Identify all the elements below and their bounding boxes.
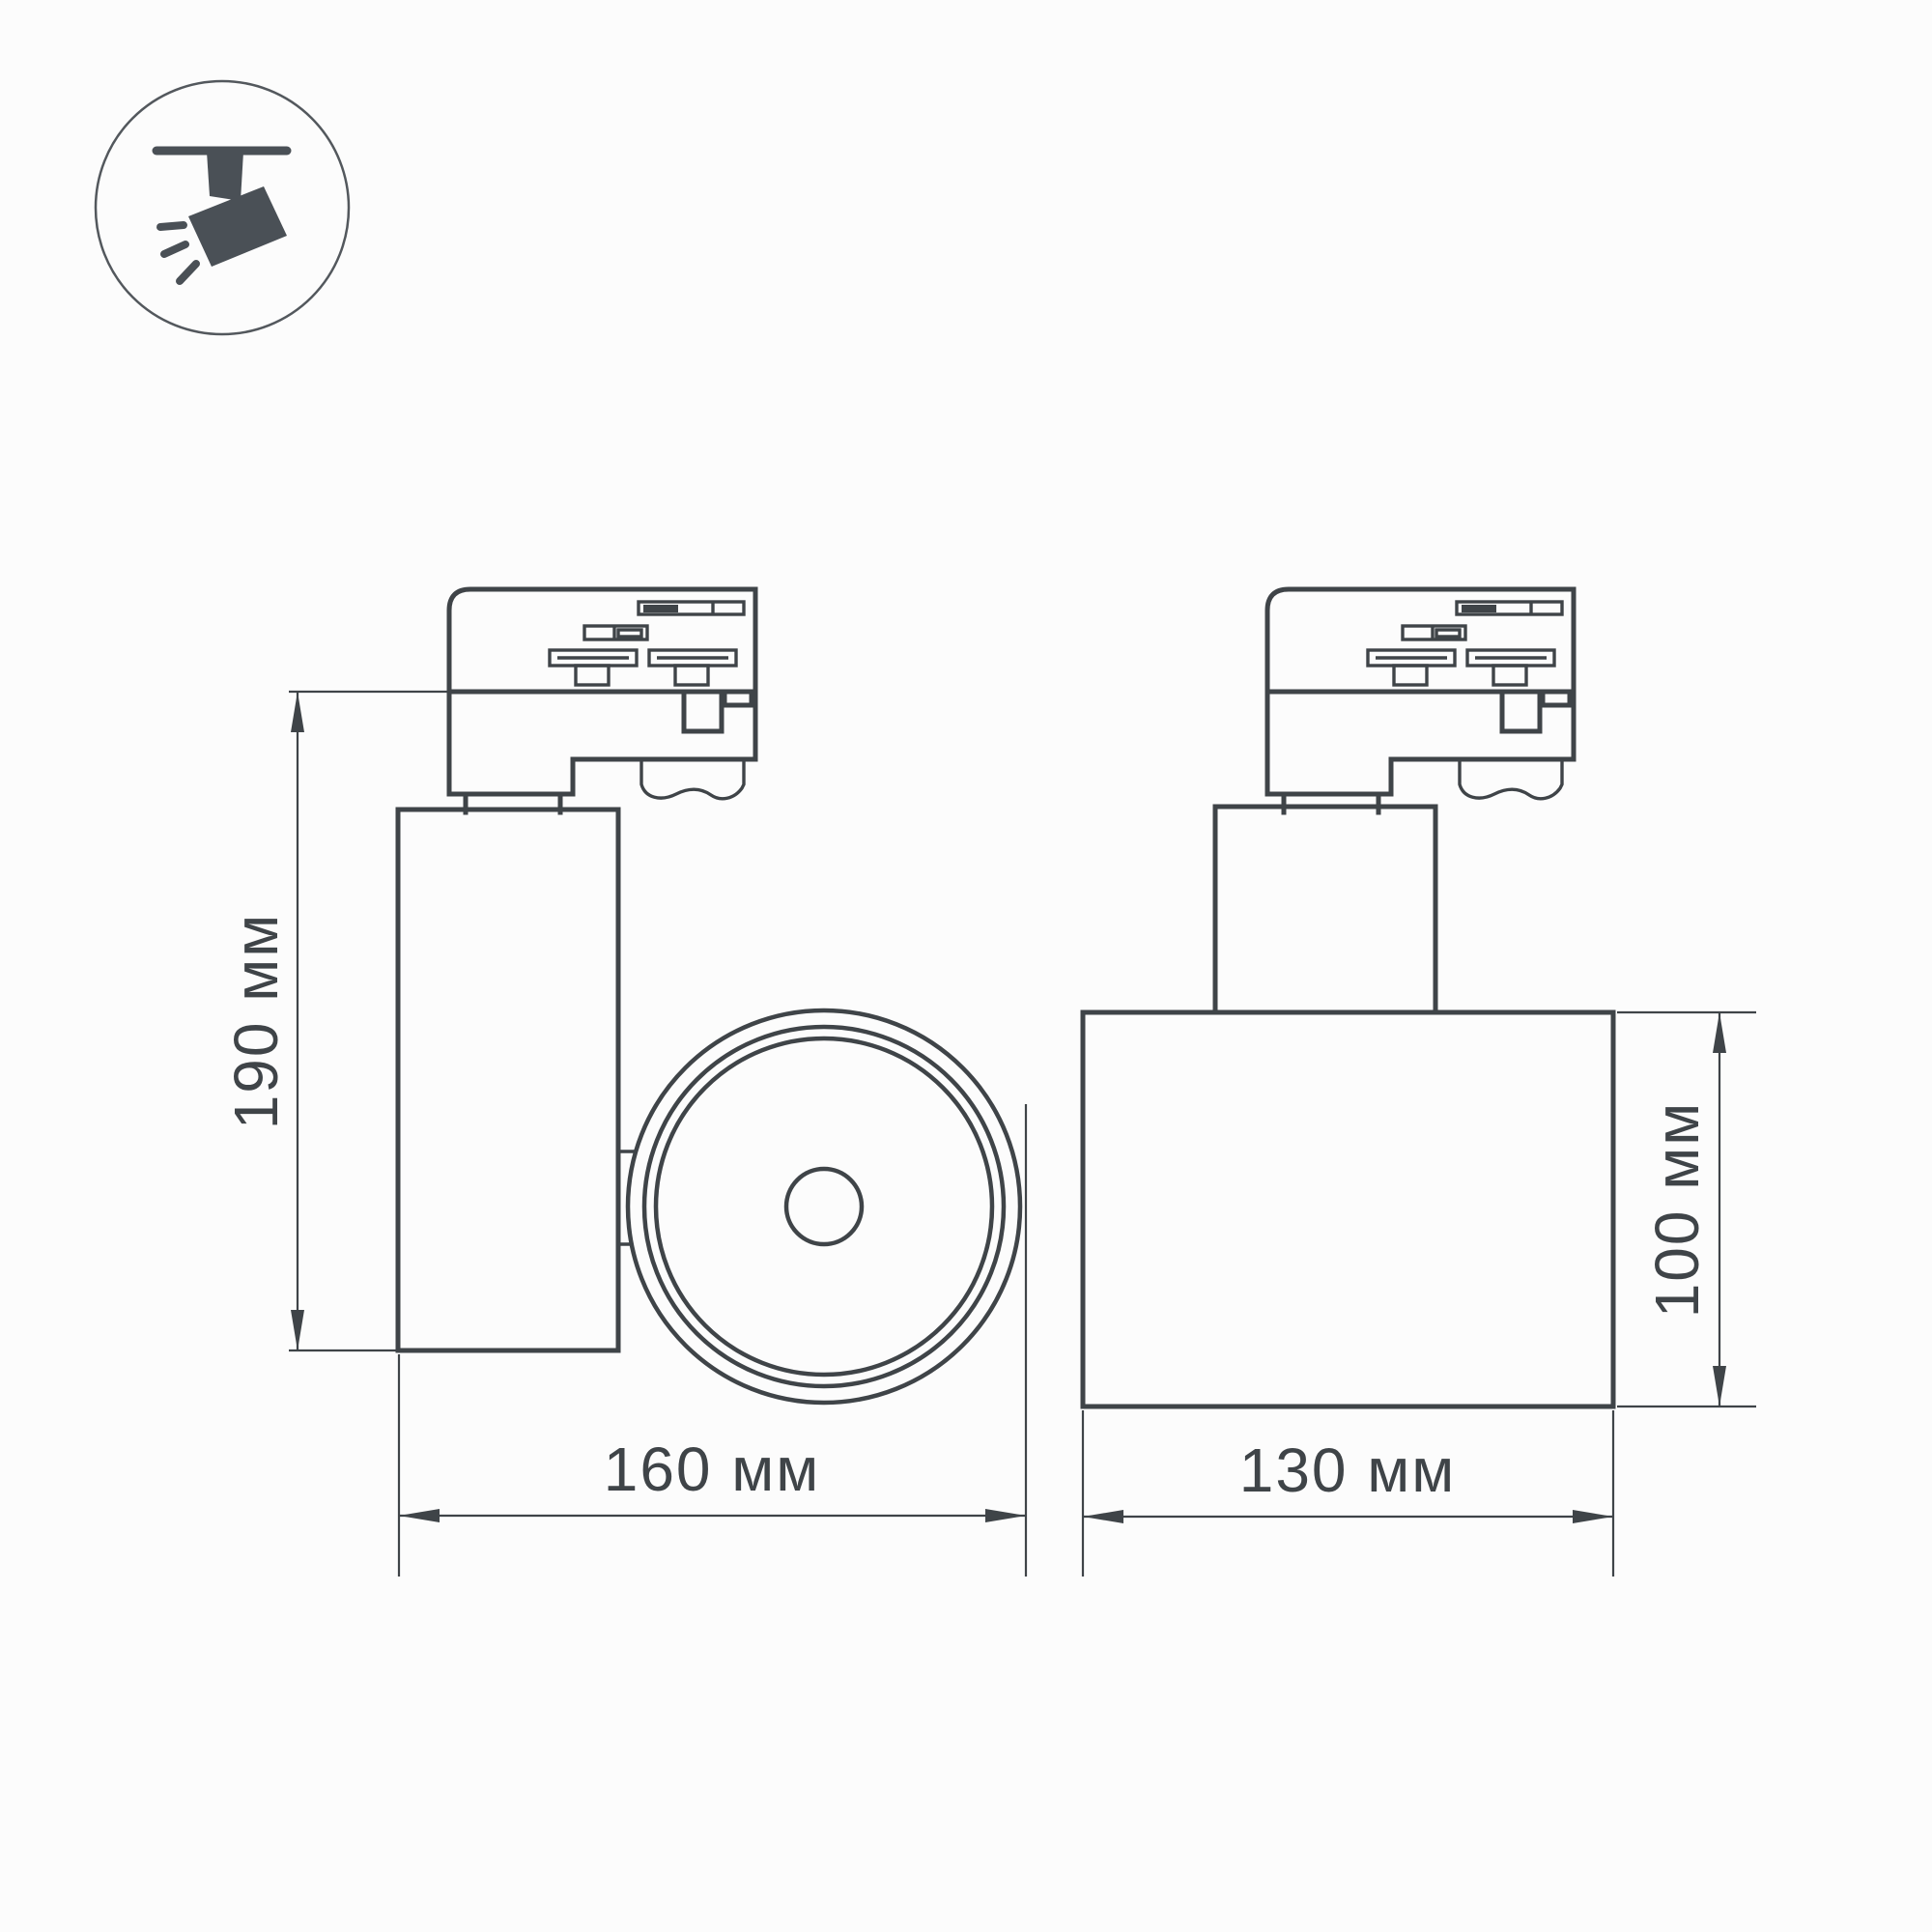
dim-label-body-height: 100 мм [1642,1101,1712,1319]
icon-lamp-body [188,186,287,267]
front-view-track-adapter [1267,589,1574,812]
icon-light-rays [160,225,196,281]
dimension-depth-130: 130 мм [1083,1410,1613,1577]
front-view-stem [1215,807,1435,1012]
front-view-housing [1083,1012,1613,1406]
product-dimensions-drawing: 190 мм 160 мм 100 мм 130 мм [0,0,1932,1932]
side-view-housing [398,810,618,1350]
track-spotlight-icon [96,81,349,334]
front-view [1083,589,1613,1406]
side-view-track-adapter [449,589,755,812]
side-view-lens [628,1010,1020,1403]
dim-label-width: 160 мм [604,1435,821,1504]
dim-label-height: 190 мм [221,913,291,1130]
dimension-body-height-100: 100 мм [1617,1012,1756,1406]
icon-stem [207,152,243,201]
side-view [398,589,1020,1403]
dim-label-depth: 130 мм [1239,1435,1457,1505]
